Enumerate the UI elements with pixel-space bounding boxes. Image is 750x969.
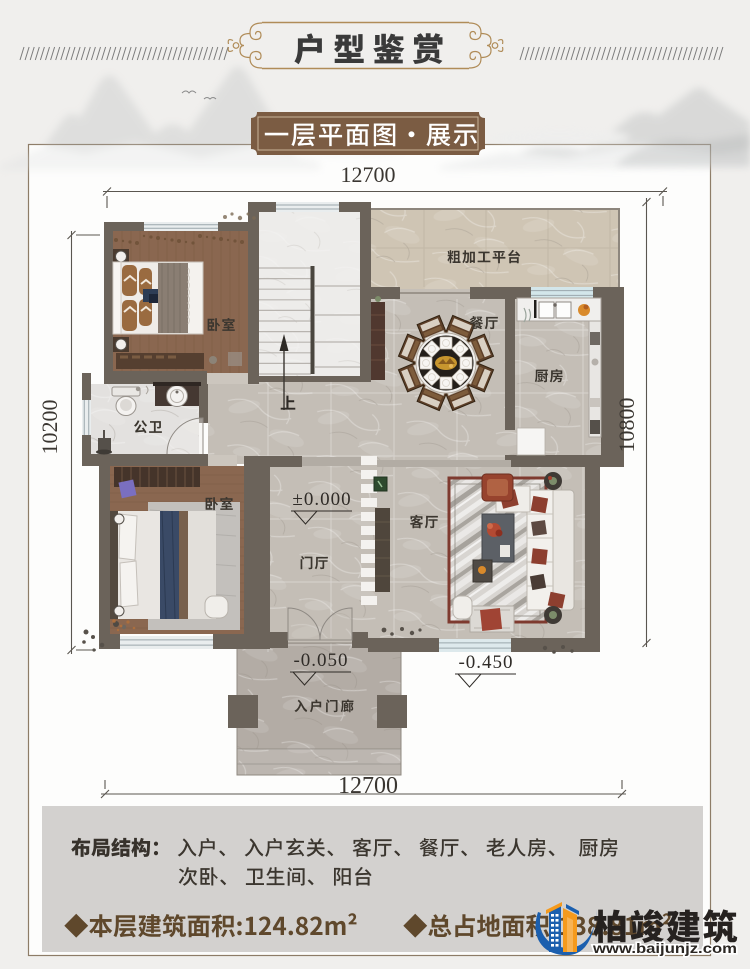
svg-text:±0.000: ±0.000 (292, 489, 351, 510)
svg-text:10200: 10200 (37, 400, 62, 455)
svg-text:-0.450: -0.450 (458, 652, 513, 673)
svg-text:10800: 10800 (614, 398, 639, 453)
svg-text:12700: 12700 (338, 773, 398, 799)
svg-text:-0.050: -0.050 (293, 650, 348, 671)
svg-text:12700: 12700 (341, 162, 396, 187)
svg-text:www.baijunjz.com: www.baijunjz.com (592, 940, 737, 956)
